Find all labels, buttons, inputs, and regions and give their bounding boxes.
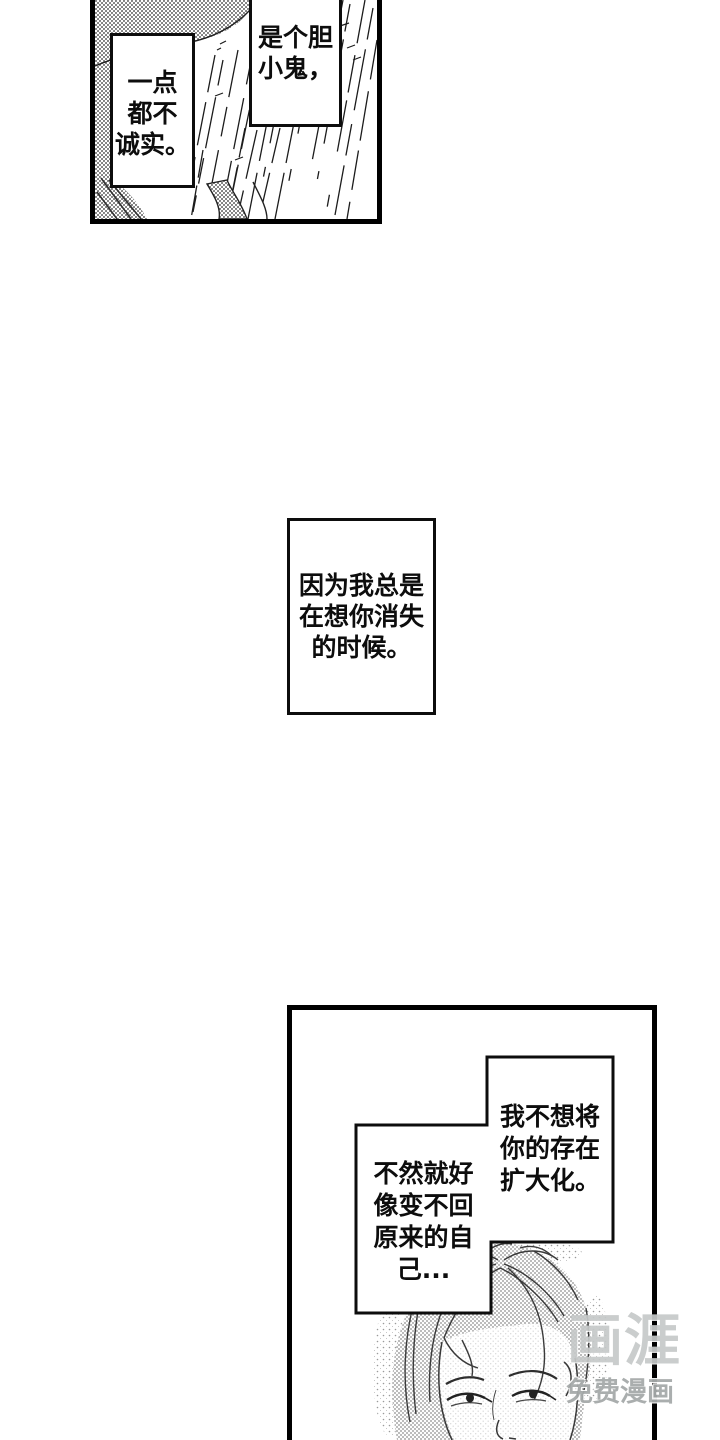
panel-bottom: 我不想将 你的存在 扩大化。 不然就好 像变不回 原来的自 己... <box>287 1005 657 1440</box>
speech-bubble-coward: 是个胆 小鬼， <box>249 0 342 127</box>
speech-bubble-revert: 不然就好 像变不回 原来的自 己... <box>356 1158 491 1286</box>
bubble-line: 一点 <box>127 67 177 98</box>
bubble-line: 原来的自 <box>356 1222 491 1254</box>
narration-line: 的时候。 <box>311 632 411 663</box>
watermark-logo: 画涯 <box>567 1312 681 1372</box>
bubble-line: 都不 <box>127 98 177 129</box>
speech-bubble-dishonest: 一点 都不 诚实。 <box>110 33 195 188</box>
bubble-line: 像变不回 <box>356 1190 491 1222</box>
panel-top: 是个胆 小鬼， 一点 都不 诚实。 <box>90 0 382 224</box>
bubble-line: 是个胆 <box>258 22 333 53</box>
bubble-line: 诚实。 <box>115 129 190 160</box>
bubble-line: 我不想将 <box>487 1101 613 1133</box>
bubble-line: 不然就好 <box>356 1158 491 1190</box>
bubble-line: 小鬼， <box>258 53 333 84</box>
bubble-line: 己... <box>356 1254 491 1286</box>
bubble-line: 扩大化。 <box>487 1165 613 1197</box>
bubble-line: 你的存在 <box>487 1133 613 1165</box>
comic-page[interactable]: 是个胆 小鬼， 一点 都不 诚实。 因为我总是 在想你消失 的时候。 <box>0 0 720 1440</box>
speech-bubble-expand: 我不想将 你的存在 扩大化。 <box>487 1101 613 1197</box>
narration-line: 在想你消失 <box>299 601 424 632</box>
watermark-tagline: 免费漫画 <box>566 1378 674 1408</box>
narration-box: 因为我总是 在想你消失 的时候。 <box>287 518 436 715</box>
narration-line: 因为我总是 <box>299 570 424 601</box>
strap-line <box>253 182 267 219</box>
